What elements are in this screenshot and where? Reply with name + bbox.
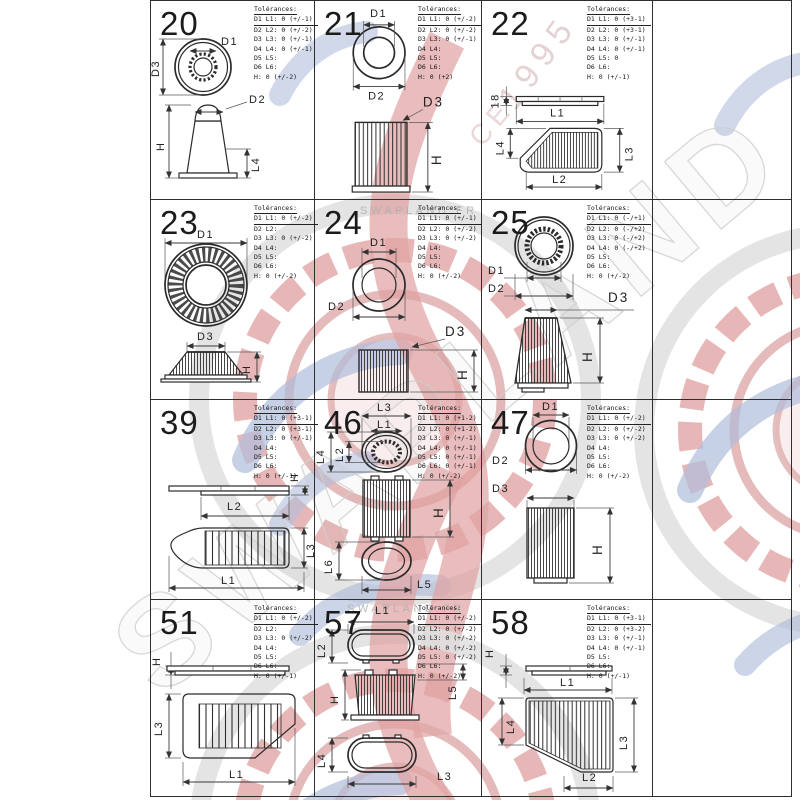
filter-number: 23 [160, 204, 199, 242]
dim-label: L3 [305, 543, 314, 558]
tolerance-row: D1 L1: 0 (+3-1) [587, 614, 651, 624]
tolerance-table: Tolérances: D1 L1: 0 (+/-2)D2 L2: 0 (+/-… [418, 604, 482, 681]
tolerance-row: D2 L2: 0 (+/-2) [418, 625, 482, 634]
tolerance-row: D6 L6: [587, 662, 651, 671]
tolerance-row: D5 L5: [587, 253, 651, 262]
cell-20: 20 Tolérances: D1 L1: 0 (+/-1)D2 L2: 0 (… [151, 1, 315, 200]
tolerance-row: H: 0 (+/-2) [418, 272, 482, 281]
tolerance-row: D4 L4: [254, 244, 318, 253]
tolerance-header: Tolérances: [254, 204, 297, 214]
tolerance-row: D2 L2: 0 (+3-2) [587, 625, 651, 634]
tolerance-row: D3 L3: 0 (+/-2) [254, 234, 318, 243]
tolerance-row: D2 L2: 0 (+/-2) [587, 425, 651, 434]
dim-label: L3 [437, 771, 452, 783]
dim-label: D2 [368, 91, 385, 103]
cell-46: 46 Tolérances: D1 L1: 0 (+1-2)D2 L2: 0 (… [315, 400, 482, 600]
tolerance-table: Tolérances: D1 L1: 0 (+3-1)D2 L2: 0 (+3-… [587, 604, 651, 681]
dim-label: L3 [153, 721, 165, 736]
cell-24: 24 Tolérances: D1 L1: 0 (+/-1)D2 L2: 0 (… [315, 200, 482, 400]
tolerance-table: Tolérances: D1 L1: 0 (+3-1)D2 L2: 0 (+3-… [254, 404, 318, 481]
filter-number: 24 [324, 204, 363, 242]
dim-label: H [484, 649, 496, 658]
tolerance-row: D3 L3: 0 (+/-1) [418, 434, 482, 443]
tolerance-row: D4 L4: 0 (+/-1) [587, 644, 651, 653]
filter-number: 25 [491, 204, 530, 242]
tolerance-row: D4 L4: 0 (+/-1) [418, 444, 482, 453]
dim-label: L1 [377, 419, 392, 431]
tolerance-table: Tolérances: D1 L1: 0 (+/-1)D2 L2: 0 (+/-… [254, 5, 318, 82]
tolerance-row: D2 L2: 0 (+3-1) [587, 26, 651, 35]
cell-47: 47 Tolérances: D1 L1: 0 (+/-2)D2 L2: 0 (… [482, 400, 653, 600]
cell-22: 22 Tolérances: D1 L1: 0 (+3-1)D2 L2: 0 (… [482, 1, 653, 200]
tolerance-row: D3 L3: 0 (+/-1) [418, 35, 482, 44]
dim-label: D2 [488, 283, 505, 295]
tolerance-row: D2 L2: 0 (+/-2) [418, 26, 482, 35]
empty-cell [653, 200, 791, 400]
tolerance-row: D1 L1: 0 (+/-1) [418, 214, 482, 224]
tolerance-row: D3 L3: 0 (+/-2) [418, 234, 482, 243]
dim-label: L1 [221, 575, 236, 587]
dim-label: D3 [492, 483, 509, 495]
dim-label: D3 [608, 290, 629, 305]
filter-number: 51 [160, 604, 199, 642]
dim-label: D2 [249, 94, 266, 106]
tolerance-table: Tolérances: D1 L1: 0 (+/-2)D2 L2: 0 (+/-… [418, 5, 482, 82]
tolerance-row: H: 0 (+/-2) [254, 73, 318, 82]
tolerance-row: D4 L4: [587, 444, 651, 453]
dim-label: L5 [417, 579, 432, 591]
tolerance-header: Tolérances: [254, 604, 297, 614]
tolerance-row: H: 0 (+/-2) [587, 472, 651, 481]
dim-label: L2 [334, 447, 346, 462]
tolerance-row: D6 L6: [254, 462, 318, 471]
tolerance-row: D1 L1: 0 (+/-2) [418, 15, 482, 25]
dim-label: L1 [550, 107, 565, 119]
tolerance-row: D3 L3: 0 (+/-1) [587, 35, 651, 44]
tolerance-row: D6 L6: [587, 462, 651, 471]
tolerance-table: Tolérances: D1 L1: 0 (+/-2)D2 L2:D3 L3: … [254, 204, 318, 281]
filter-number: 57 [324, 604, 363, 642]
tolerance-row: H: 0 (+2) [418, 73, 482, 82]
tolerance-row: D4 L4: 0 (+/-1) [587, 45, 651, 54]
empty-cell [653, 1, 791, 200]
dim-label: L3 [618, 735, 630, 750]
tolerance-table: Tolérances: D1 L1: 0 (+/-2)D2 L2:D3 L3: … [254, 604, 318, 681]
tolerance-row: D2 L2: [254, 225, 318, 234]
tolerance-row: D2 L2: 0 (+/-2) [418, 225, 482, 234]
dim-label: L4 [250, 157, 262, 172]
tolerance-table: Tolérances: D1 L1: 0 (-/+1)D2 L2: 0 (-/+… [587, 204, 651, 281]
dim-label: L2 [227, 501, 242, 513]
tolerance-row: H: 0 (+/-2) [254, 272, 318, 281]
tolerance-row: D2 L2: [254, 625, 318, 634]
filter-number: 46 [324, 404, 363, 442]
tolerance-row: H: 0 (+/-1) [254, 672, 318, 681]
dim-label: H [431, 506, 446, 518]
empty-cell [653, 600, 791, 796]
tolerance-row: D5 L5: [254, 54, 318, 63]
empty-cell [653, 400, 791, 600]
filter-number: 20 [160, 5, 199, 43]
dim-label: L4 [316, 753, 328, 768]
tolerance-row: D4 L4: [254, 644, 318, 653]
tolerance-row: D3 L3: 0 (+/-1) [254, 434, 318, 443]
dim-label: D1 [488, 265, 505, 277]
tolerance-row: D1 L1: 0 (+/-2) [254, 614, 318, 624]
filter-number: 58 [491, 604, 530, 642]
cell-21: 21 Tolérances: D1 L1: 0 (+/-2)D2 L2: 0 (… [315, 1, 482, 200]
tolerance-row: D5 L5: 0 (+/-1) [418, 453, 482, 462]
tolerance-row: D2 L2: 0 (-/+2) [587, 225, 651, 234]
tolerance-header: Tolérances: [418, 404, 461, 414]
tolerance-row: D2 L2: 0 (+/-2) [254, 26, 318, 35]
dim-label: H [455, 368, 470, 380]
dim-label: D1 [370, 8, 387, 20]
dim-label: H [590, 543, 605, 555]
tolerance-row: D2 L2: 0 (+3-1) [254, 425, 318, 434]
tolerance-row: D4 L4: [418, 244, 482, 253]
tolerance-header: Tolérances: [418, 604, 461, 614]
tolerance-row: D5 L5: [587, 453, 651, 462]
dim-label: D2 [492, 455, 509, 467]
dim-label: D1 [221, 36, 238, 48]
tolerance-row: D3 L3: 0 (+/-1) [587, 634, 651, 643]
dim-label: H [155, 142, 167, 151]
tolerance-row: D1 L1: 0 (+/-2) [418, 614, 482, 624]
dim-label: D3 [197, 331, 214, 343]
filter-grid: 20 Tolérances: D1 L1: 0 (+/-1)D2 L2: 0 (… [150, 0, 792, 797]
tolerance-row: H: 0 (+/-1) [254, 472, 318, 481]
dim-label: D2 [328, 301, 345, 313]
tolerance-row: D5 L5: [418, 54, 482, 63]
dim-label: D1 [370, 237, 387, 249]
tolerance-header: Tolérances: [254, 5, 297, 15]
dim-label: L3 [624, 146, 636, 161]
dim-label: H [241, 365, 253, 374]
dim-label: L6 [323, 559, 335, 574]
filter-number: 21 [324, 5, 363, 43]
tolerance-row: D4 L4: 0 (+/-2) [418, 644, 482, 653]
tolerance-row: D1 L1: 0 (-/+1) [587, 214, 651, 224]
tolerance-row: D3 L3: 0 (-/+2) [587, 234, 651, 243]
tolerance-table: Tolérances: D1 L1: 0 (+1-2)D2 L2: 0 (+1-… [418, 404, 482, 481]
tolerance-row: D2 L2: 0 (+1-2) [418, 425, 482, 434]
tolerance-row: D6 L6: [254, 63, 318, 72]
cell-39: 39 Tolérances: D1 L1: 0 (+3-1)D2 L2: 0 (… [151, 400, 315, 600]
dim-label: D1 [197, 229, 214, 241]
dim-label: D1 [542, 401, 559, 413]
dim-label: D3 [151, 60, 162, 77]
dim-label: L4 [494, 140, 506, 155]
tolerance-row: D1 L1: 0 (+3-1) [587, 15, 651, 25]
tolerance-table: Tolérances: D1 L1: 0 (+/-2)D2 L2: 0 (+/-… [587, 404, 651, 481]
tolerance-row: D5 L5: [254, 453, 318, 462]
dim-label: L5 [447, 685, 459, 700]
dim-label: H [580, 350, 595, 362]
tolerance-row: D5 L5: [418, 253, 482, 262]
tolerance-row: H: 0 (+/-2) [418, 672, 482, 681]
tolerance-row: H: 0 (+/-1) [587, 73, 651, 82]
tolerance-row: D1 L1: 0 (+1-2) [418, 414, 482, 424]
tolerance-row: H: 0 (+/-2) [587, 272, 651, 281]
filter-number: 22 [491, 5, 530, 43]
tolerance-row: D1 L1: 0 (+/-2) [254, 214, 318, 224]
tolerance-header: Tolérances: [587, 604, 630, 614]
tolerance-row: D6 L6: [587, 63, 651, 72]
tolerance-row: D5 L5: [254, 653, 318, 662]
tolerance-row: D3 L3: 0 (+/-2) [254, 634, 318, 643]
tolerance-row: D6 L6: [418, 662, 482, 671]
dim-label: H [151, 657, 163, 666]
tolerance-row: D1 L1: 0 (+/-1) [254, 15, 318, 25]
tolerance-row: D5 L5: 0 [587, 54, 651, 63]
tolerance-row: D6 L6: [418, 262, 482, 271]
tolerance-row: D4 L4: 0 (-/+2) [587, 244, 651, 253]
tolerance-header: Tolérances: [418, 204, 461, 214]
dim-label: D3 [423, 94, 444, 109]
cell-23: 23 Tolérances: D1 L1: 0 (+/-2)D2 L2:D3 L… [151, 200, 315, 400]
cell-58: 58 Tolérances: D1 L1: 0 (+3-1)D2 L2: 0 (… [482, 600, 653, 796]
tolerance-row: D4 L4: 0 (+/-1) [254, 45, 318, 54]
tolerance-header: Tolérances: [418, 5, 461, 15]
cell-51: 51 Tolérances: D1 L1: 0 (+/-2)D2 L2:D3 L… [151, 600, 315, 796]
dim-label: L1 [560, 677, 575, 689]
dim-label: H [329, 695, 341, 704]
dim-label: L1 [229, 769, 244, 781]
tolerance-row: D3 L3: 0 (+/-2) [418, 634, 482, 643]
cell-25: 25 Tolérances: D1 L1: 0 (-/+1)D2 L2: 0 (… [482, 200, 653, 400]
tolerance-row: D5 L5: [587, 653, 651, 662]
tolerance-row: D1 L1: 0 (+/-2) [587, 414, 651, 424]
tolerance-header: Tolérances: [587, 204, 630, 214]
tolerance-row: H: 0 (+/-1) [587, 672, 651, 681]
tolerance-table: Tolérances: D1 L1: 0 (+3-1)D2 L2: 0 (+3-… [587, 5, 651, 82]
dim-label: L4 [505, 719, 517, 734]
tolerance-row: D1 L1: 0 (+3-1) [254, 414, 318, 424]
dim-label: L2 [582, 772, 597, 784]
dim-label: H [429, 153, 444, 165]
tolerance-row: D4 L4: [254, 444, 318, 453]
dim-label: 18 [489, 93, 501, 108]
tolerance-row: D6 L6: [587, 262, 651, 271]
tolerance-header: Tolérances: [587, 5, 630, 15]
tolerance-header: Tolérances: [587, 404, 630, 414]
filter-number: 47 [491, 404, 530, 442]
catalog-page: SWAPLAND 1995 CE SWAPLAND.FR SWAPLAND.FR… [0, 0, 800, 800]
tolerance-row: D5 L5: 0 (+/-2) [418, 653, 482, 662]
tolerance-row: D6 L6: [254, 262, 318, 271]
tolerance-row: H: 0 (+/-2) [418, 472, 482, 481]
tolerance-header: Tolérances: [254, 404, 297, 414]
tolerance-row: D3 L3: 0 (+/-1) [254, 35, 318, 44]
tolerance-row: D6 L6: [254, 662, 318, 671]
dim-label: L3 [377, 402, 392, 414]
tolerance-row: D6 L6: 0 (+/-1) [418, 462, 482, 471]
tolerance-row: D4 L4: [418, 45, 482, 54]
tolerance-row: D5 L5: [254, 253, 318, 262]
tolerance-row: D3 L3: 0 (+/-2) [587, 434, 651, 443]
dim-label: D3 [445, 324, 466, 339]
tolerance-row: D6 L6: [418, 63, 482, 72]
cell-57: 57 Tolérances: D1 L1: 0 (+/-2)D2 L2: 0 (… [315, 600, 482, 796]
dim-label: L2 [552, 174, 567, 186]
dim-label: L1 [375, 605, 390, 617]
tolerance-table: Tolérances: D1 L1: 0 (+/-1)D2 L2: 0 (+/-… [418, 204, 482, 281]
filter-number: 39 [160, 404, 199, 442]
